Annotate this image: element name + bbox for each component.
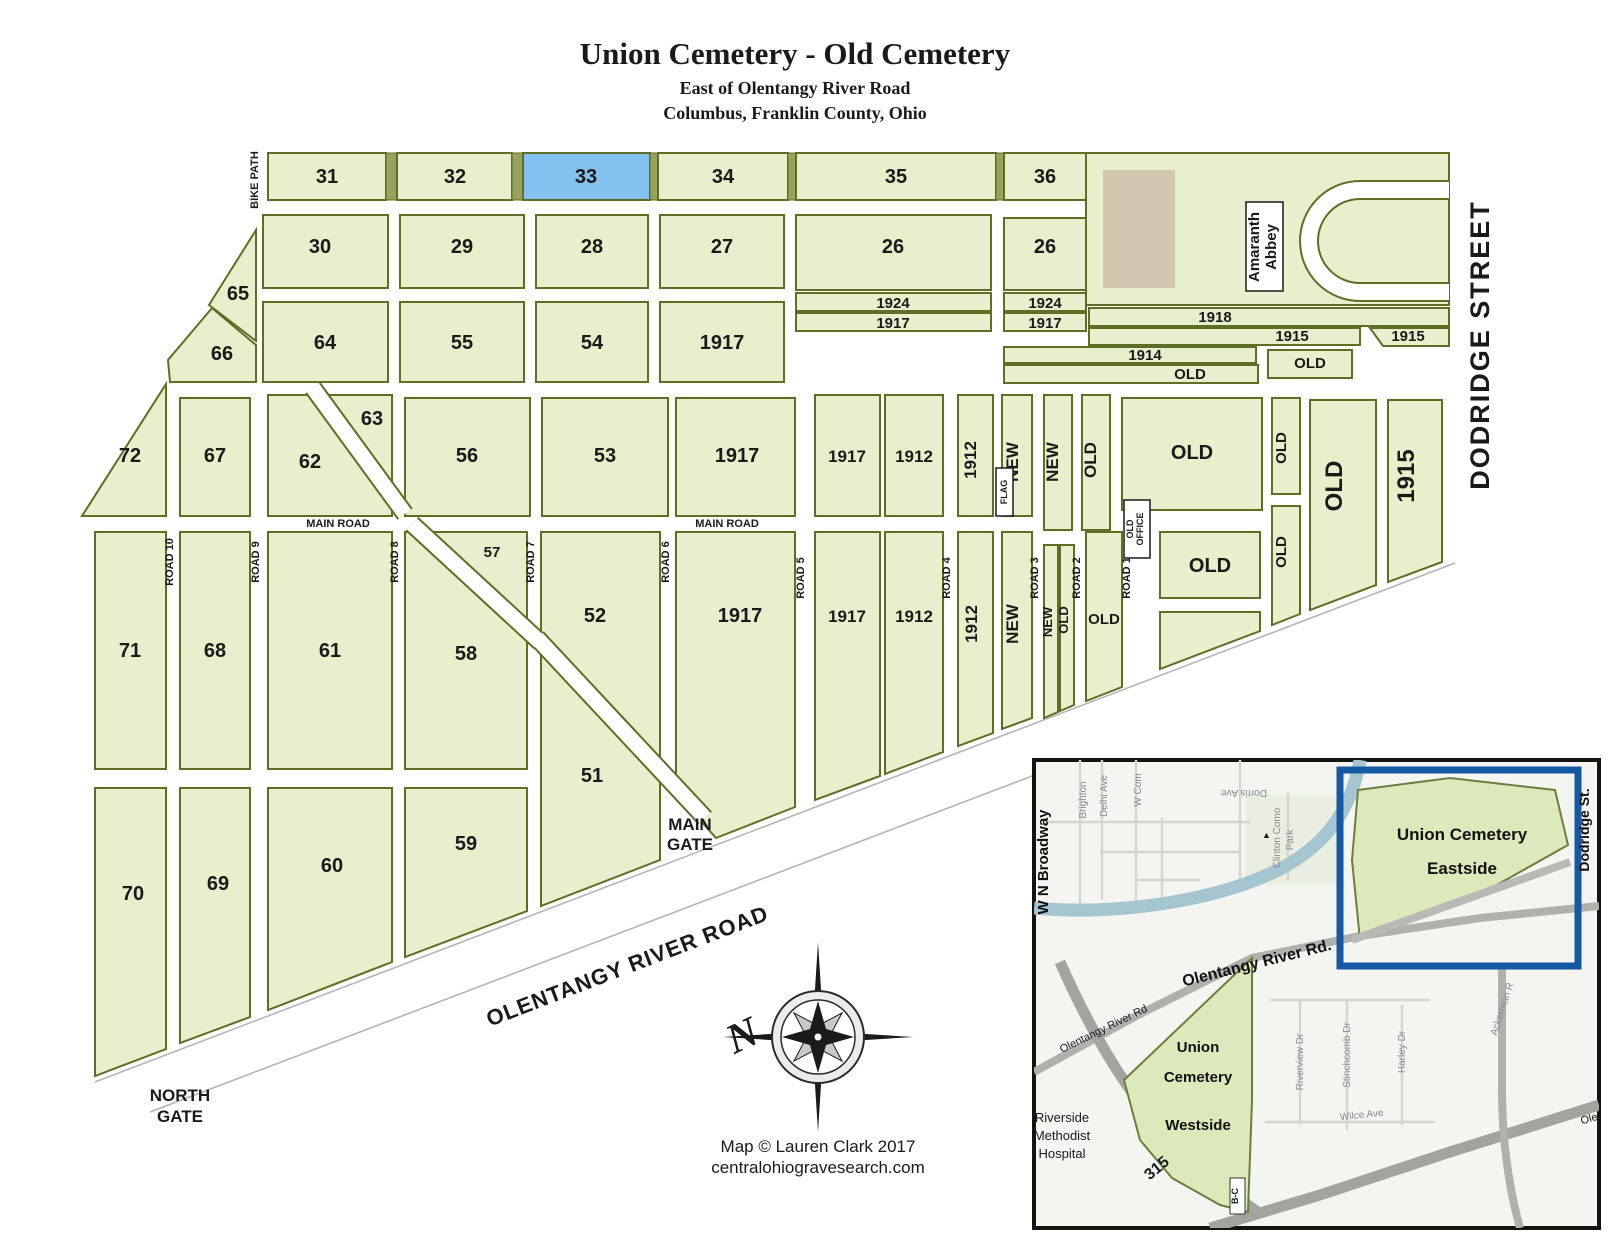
section-59-label: 59 (455, 833, 477, 855)
section-56-label: 56 (456, 445, 478, 467)
inset-stinchcomb-label: Stinchcomb Dr (1342, 1022, 1353, 1088)
road-7-label: ROAD 7 (525, 541, 537, 583)
inset-clinton-como-label-1: Clinton Como (1272, 807, 1283, 868)
section-1915-rotated-label: 1915 (1393, 449, 1420, 502)
band-old-west[interactable] (1004, 365, 1258, 383)
inset-clinton-como-label-2: Park (1285, 829, 1296, 851)
section-26-east-label: 26 (1034, 236, 1056, 258)
band-1924-west-label: 1924 (876, 295, 910, 312)
section-61-label: 61 (319, 640, 341, 662)
page-subtitle-2: Columbus, Franklin County, Ohio (663, 103, 927, 123)
main-gate-label-2: GATE (667, 835, 713, 854)
band-1917-east-label: 1917 (1028, 315, 1061, 332)
section-34-label: 34 (712, 166, 735, 188)
inset-westside-label-3: Westside (1165, 1117, 1231, 1134)
inset-park-tree-icon: ▲ (1262, 830, 1271, 840)
section-separator (386, 153, 397, 200)
north-gate-label-2: GATE (157, 1107, 203, 1126)
green-filler-1 (1160, 612, 1260, 669)
inset-dodridge-st-label: Dodridge St. (1576, 788, 1592, 871)
inset-brighton-label: Brighton (1078, 781, 1089, 818)
inset-map: B-C W N Broadway Brighton Delhi Ave W Co… (1034, 760, 1599, 1228)
main-road-label-west: MAIN ROAD (306, 518, 370, 530)
road-1-label: ROAD 1 (1121, 557, 1133, 599)
section-new-b-row4-label: NEW (1043, 441, 1062, 482)
inset-westside-label-1: Union (1177, 1039, 1220, 1056)
section-72-label: 72 (119, 445, 141, 467)
section-28-label: 28 (581, 236, 603, 258)
inset-eastside-label-1: Union Cemetery (1397, 825, 1528, 844)
section-old-row5-label: OLD (1088, 611, 1120, 628)
band-1918[interactable] (1089, 308, 1449, 326)
band-1914-label: 1914 (1128, 347, 1162, 364)
section-71-label: 71 (119, 640, 141, 662)
section-1917-row5-label: 1917 (718, 605, 763, 627)
band-1915-west[interactable] (1089, 328, 1360, 345)
section-new-row5-label: NEW (1003, 603, 1022, 644)
section-59[interactable] (405, 788, 527, 957)
section-old-narrow-row5-label: OLD (1056, 606, 1071, 633)
section-1912-vertical-row5-label: 1912 (962, 605, 981, 643)
section-54-label: 54 (581, 332, 604, 354)
inset-dorris-ave-label: Dorris Ave (1221, 787, 1267, 798)
amaranth-abbey-label-2: Abbey (1263, 223, 1280, 270)
inset-delhi-ave-label: Delhi Ave (1099, 775, 1110, 818)
section-30-label: 30 (309, 236, 331, 258)
section-old-narrow-upper-label: OLD (1273, 432, 1290, 464)
section-26-west-label: 26 (882, 236, 904, 258)
section-69-label: 69 (207, 873, 229, 895)
old-office-label-1: OLD (1125, 519, 1135, 538)
section-1912-vertical-row4-label: 1912 (961, 441, 980, 479)
compass-hub (814, 1033, 822, 1041)
section-1912-row5[interactable] (885, 532, 943, 774)
section-33-label: 33 (575, 166, 597, 188)
north-gate-label-1: NORTH (150, 1086, 210, 1105)
band-1917-west-label: 1917 (876, 315, 909, 332)
inset-w-com-label: W Com (1133, 773, 1144, 806)
section-1917-row5b[interactable] (815, 532, 880, 800)
section-1917-row5b-label: 1917 (828, 607, 866, 626)
inset-hospital-label-2: Methodist (1034, 1128, 1091, 1143)
section-65-label: 65 (227, 283, 249, 305)
band-1918-label: 1918 (1198, 309, 1231, 326)
section-70-label: 70 (122, 883, 144, 905)
section-old-2-label: OLD (1189, 555, 1231, 577)
flag-label: FLAG (999, 480, 1009, 505)
main-road-label-east: MAIN ROAD (695, 518, 759, 530)
section-52-label: 52 (584, 605, 606, 627)
section-new-narrow-row5-label: NEW (1040, 606, 1055, 637)
section-60[interactable] (268, 788, 392, 1010)
olentangy-river-road-label: OLENTANGY RIVER ROAD (483, 901, 772, 1032)
credit-line-1: Map © Lauren Clark 2017 (721, 1137, 916, 1156)
section-separator (788, 153, 796, 200)
section-31-label: 31 (316, 166, 338, 188)
section-62-label: 62 (299, 451, 321, 473)
road-2-label: ROAD 2 (1071, 557, 1083, 599)
section-63-label: 63 (361, 408, 383, 430)
section-69[interactable] (180, 788, 250, 1043)
section-35-label: 35 (885, 166, 907, 188)
inset-eastside-label-2: Eastside (1427, 859, 1497, 878)
section-old-large-label: OLD (1171, 442, 1213, 464)
band-1915-east-label: 1915 (1391, 328, 1424, 345)
amaranth-abbey-label-1: Amaranth (1246, 212, 1263, 282)
dodridge-street-label: DODRIDGE STREET (1465, 200, 1495, 490)
inset-riverview-label: Riverview Dr (1295, 1033, 1306, 1090)
band-old-west-label: OLD (1174, 366, 1206, 383)
band-1915-west-label: 1915 (1275, 328, 1308, 345)
band-1924-east-label: 1924 (1028, 295, 1062, 312)
road-5-label: ROAD 5 (795, 557, 807, 599)
inset-westside-label-2: Cemetery (1164, 1069, 1233, 1086)
section-66-label: 66 (211, 343, 233, 365)
section-1917-row3-label: 1917 (700, 332, 745, 354)
old-office-label-2: OFFICE (1135, 513, 1145, 546)
abbey-building (1103, 170, 1175, 288)
inset-exit-label: B-C (1230, 1188, 1240, 1204)
band-old-east-label: OLD (1294, 355, 1326, 372)
section-67-label: 67 (204, 445, 226, 467)
page-title: Union Cemetery - Old Cemetery (580, 36, 1011, 71)
road-6-label: ROAD 6 (660, 541, 672, 583)
section-68-label: 68 (204, 640, 226, 662)
section-1917-row5[interactable] (676, 532, 795, 838)
credit-line-2: centralohiogravesearch.com (711, 1158, 925, 1177)
main-gate-label-1: MAIN (668, 815, 711, 834)
inset-hospital-label-3: Hospital (1039, 1146, 1086, 1161)
section-1912-row4-label: 1912 (895, 447, 933, 466)
section-1912-row5-label: 1912 (895, 607, 933, 626)
section-36-label: 36 (1034, 166, 1056, 188)
inset-harley-label: Harley Dr (1397, 1030, 1408, 1073)
bike-path-label: BIKE PATH (249, 151, 261, 209)
section-57-label: 57 (484, 544, 501, 561)
page-subtitle-1: East of Olentangy River Road (680, 78, 911, 98)
road-9-label: ROAD 9 (250, 541, 262, 583)
section-70[interactable] (95, 788, 166, 1076)
section-old-vertical-row4-label: OLD (1081, 442, 1100, 478)
map-canvas: Union Cemetery - Old Cemetery East of Ol… (0, 0, 1621, 1234)
inset-wn-broadway-label: W N Broadway (1035, 809, 1052, 915)
cemetery-map-page: Union Cemetery - Old Cemetery East of Ol… (0, 0, 1621, 1234)
compass-rose: N (718, 942, 913, 1132)
road-4-label: ROAD 4 (941, 556, 953, 598)
section-32-label: 32 (444, 166, 466, 188)
section-separator (996, 153, 1004, 200)
road-10-label: ROAD 10 (164, 538, 176, 586)
section-64-label: 64 (314, 332, 337, 354)
section-60-label: 60 (321, 855, 343, 877)
inset-hospital-label-1: Riverside (1035, 1110, 1089, 1125)
section-29-label: 29 (451, 236, 473, 258)
section-old-rotated-label: OLD (1321, 461, 1348, 512)
section-53-label: 53 (594, 445, 616, 467)
section-separator (512, 153, 523, 200)
section-55-label: 55 (451, 332, 473, 354)
section-58-label: 58 (455, 643, 477, 665)
section-1917-row4-label: 1917 (715, 445, 760, 467)
section-27-label: 27 (711, 236, 733, 258)
road-8-label: ROAD 8 (389, 541, 401, 583)
section-51-label: 51 (581, 765, 603, 787)
section-old-narrow-lower-label: OLD (1273, 536, 1290, 568)
section-1917-row4b-label: 1917 (828, 447, 866, 466)
section-separator (650, 153, 658, 200)
road-3-label: ROAD 3 (1029, 557, 1041, 599)
